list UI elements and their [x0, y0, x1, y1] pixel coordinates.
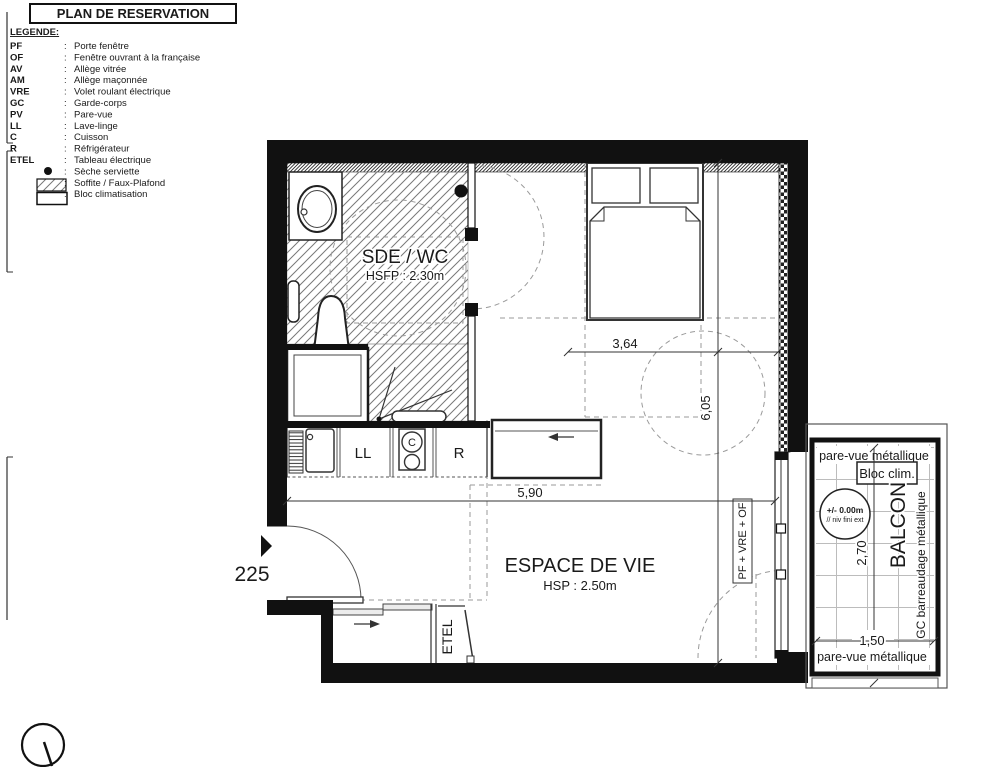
pillow-left [592, 168, 640, 203]
legend-sep: : [64, 64, 67, 75]
washer-label: LL [355, 445, 372, 462]
wall-entry-stub [267, 600, 333, 615]
mattress [590, 207, 700, 318]
wall-top [267, 140, 808, 163]
legend-label: Fenêtre ouvrant à la française [74, 52, 200, 63]
dim-balcony-depth: 2,70 [854, 540, 869, 565]
legend-sep: : [64, 75, 67, 86]
cooktop: C [399, 429, 425, 470]
legend-abbr: VRE [10, 87, 30, 98]
legend-abbr: LL [10, 121, 22, 132]
bathroom-door-swing-arc [472, 165, 544, 309]
electrical-panel: ETEL [431, 604, 474, 663]
level-note: // niv fini ext [827, 517, 864, 524]
legend-sep: : [64, 144, 67, 155]
legend-abbr: PV [10, 109, 23, 120]
living-ceiling: HSP : 2.50m [543, 578, 616, 593]
entry-door [267, 526, 363, 603]
legend-label: Tableau électrique [74, 155, 151, 166]
legend-label: Lave-linge [74, 121, 118, 132]
bloc-clim-box: Bloc clim. [857, 462, 917, 484]
dim-total-depth: 6,05 [698, 395, 713, 420]
unit-number: 225 [234, 535, 272, 586]
legend-sep: : [64, 98, 67, 109]
balcony: pare-vue métallique Bloc clim. +/- 0.00m… [806, 424, 947, 688]
railing-label: GC barreaudage métallique [914, 491, 928, 639]
wall-left [267, 140, 287, 526]
level-marker: +/- 0.00m // niv fini ext [820, 489, 870, 539]
legend-abbr: GC [10, 98, 24, 109]
legend: LEGENDE: PF:Porte fenêtre OF:Fenêtre ouv… [10, 27, 200, 205]
dot-icon [44, 167, 52, 175]
legend-sep: : [64, 166, 67, 177]
hall-closet [492, 420, 601, 478]
door-number: 225 [234, 563, 269, 586]
legend-label: Pare-vue [74, 109, 113, 120]
legend-sep: : [64, 155, 67, 166]
wall-bath-kitchen [283, 344, 368, 350]
window-label-box: PF + VRE + OF [733, 499, 752, 583]
etel-label: ETEL [439, 619, 455, 654]
legend-label: Allège maçonnée [74, 75, 147, 86]
kitchen-sink [306, 429, 334, 472]
legend-abbr: AV [10, 64, 23, 75]
legend-sep: : [64, 109, 67, 120]
pare-vue-bottom-label: pare-vue métallique [817, 650, 927, 664]
page-title: PLAN DE RESERVATION [57, 6, 209, 21]
title-block: PLAN DE RESERVATION [30, 4, 236, 23]
legend-label: Allège vitrée [74, 64, 126, 75]
legend-abbr: C [10, 132, 17, 143]
dim-balcony-width: 1,50 [859, 633, 884, 648]
bloc-clim-label: Bloc clim. [859, 466, 915, 481]
floor-plan-drawing: LL C R ETEL [0, 0, 982, 767]
legend-abbr: PF [10, 41, 22, 52]
north-arrow-icon [22, 724, 64, 766]
kitchen-counter: LL C R [287, 427, 487, 477]
floor-plan-page: LL C R ETEL [0, 0, 982, 767]
legend-sep: : [64, 121, 67, 132]
legend-sep: : [64, 178, 67, 189]
towel-dryer-dot [455, 185, 468, 198]
legend-abbr: ETEL [10, 155, 34, 166]
living-window [775, 452, 788, 658]
legend-label: Volet roulant électrique [74, 87, 171, 98]
bathroom-name: SDE / WC [362, 247, 449, 268]
cooktop-label: C [408, 437, 416, 449]
closet-slide-arrow-right [354, 620, 380, 628]
level-value: +/- 0.00m [827, 505, 864, 515]
wall-bottom [321, 663, 808, 683]
wall-entry-jog [321, 613, 333, 665]
legend-label: Garde-corps [74, 98, 127, 109]
legend-abbr: OF [10, 52, 23, 63]
wall-right [788, 140, 808, 452]
bed [587, 163, 703, 320]
balcony-name: BALCON [887, 482, 910, 568]
hatch-swatch-icon [37, 179, 66, 191]
wall-right-bottom-stub [777, 652, 808, 683]
vanity-sink [289, 172, 342, 240]
drainer [289, 431, 303, 473]
legend-abbr: AM [10, 75, 25, 86]
towel-rail [288, 281, 299, 322]
legend-sep: : [64, 189, 67, 200]
wall-kitchen-back [283, 421, 490, 428]
legend-abbr: R [10, 144, 17, 155]
legend-label: Sèche serviette [74, 166, 139, 177]
pillow-right [650, 168, 698, 203]
legend-label: Soffite / Faux-Plafond [74, 178, 165, 189]
bathroom-ceiling: HSFP : 2.30m [366, 269, 444, 283]
dim-living-width: 5,90 [517, 485, 542, 500]
legend-label: Porte fenêtre [74, 41, 129, 52]
legend-label: Cuisson [74, 132, 108, 143]
living-name: ESPACE DE VIE [505, 555, 656, 577]
legend-sep: : [64, 132, 67, 143]
window-label: PF + VRE + OF [737, 502, 749, 579]
fridge-label: R [454, 445, 465, 462]
legend-sep: : [64, 87, 67, 98]
rect-swatch-icon [37, 193, 67, 205]
dim-bedroom-width: 3,64 [612, 336, 637, 351]
legend-heading: LEGENDE: [10, 27, 59, 38]
shower-tray [287, 348, 368, 423]
legend-sep: : [64, 52, 67, 63]
legend-label: Réfrigérateur [74, 144, 129, 155]
legend-sep: : [64, 41, 67, 52]
door-marker-triangle [261, 535, 272, 557]
legend-label: Bloc climatisation [74, 189, 147, 200]
entry-closet: ETEL [333, 604, 474, 663]
